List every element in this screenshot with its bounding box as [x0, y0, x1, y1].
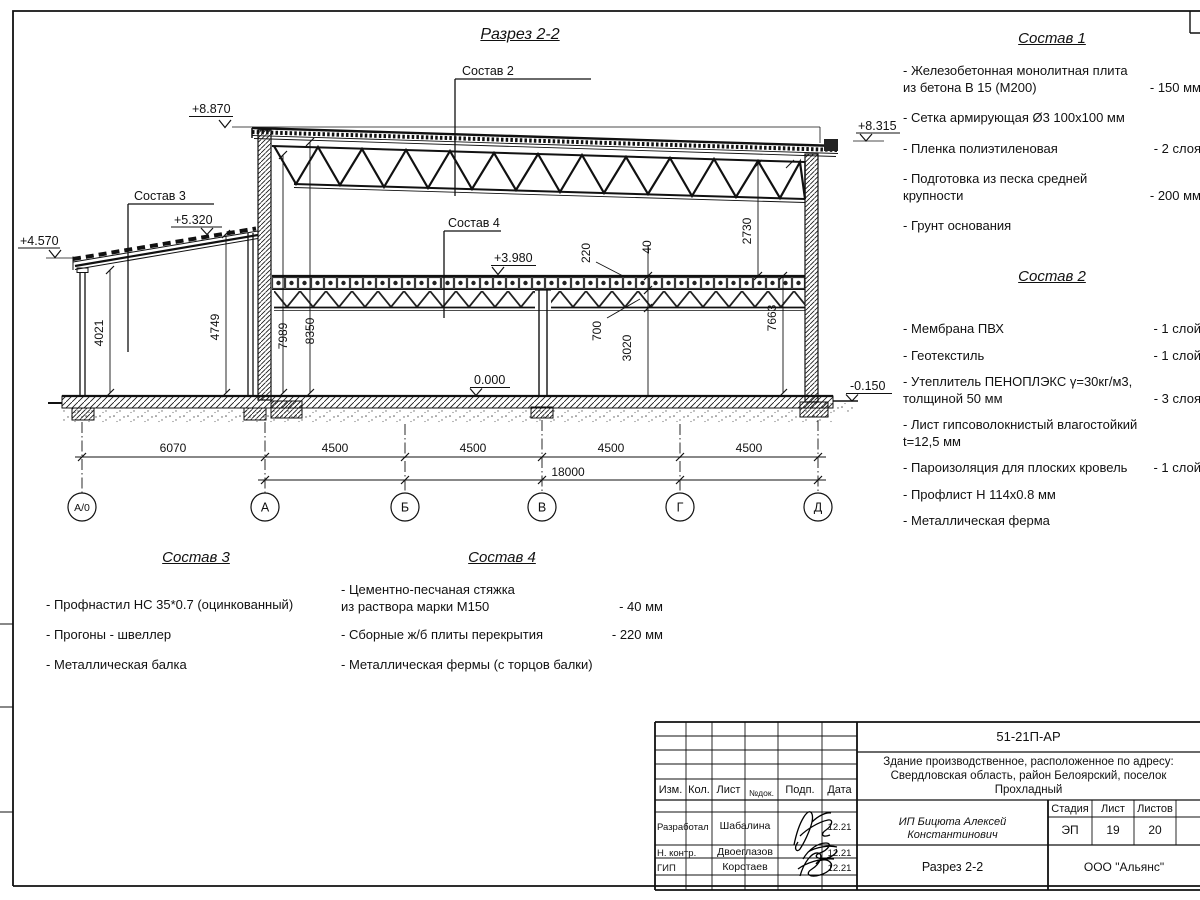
dim-6070: 6070 — [160, 441, 187, 455]
list-item: - Сетка армирующая Ø3 100х100 мм — [903, 110, 1200, 127]
elevation-marks — [18, 117, 900, 402]
dim-220: 220 — [579, 243, 593, 263]
col-ndok: №док. — [745, 787, 778, 800]
sostav3-list: Состав 3 - Профнастил НС 35*0.7 (оцинков… — [46, 549, 346, 674]
axis-label-a0: А/0 — [74, 502, 90, 514]
col-data: Дата — [822, 784, 857, 797]
list-item: - Сборные ж/б плиты перекрытия- 220 мм — [341, 627, 663, 644]
dim-7663: 7663 — [765, 304, 779, 331]
main-roof — [232, 127, 838, 157]
building-section — [48, 127, 858, 423]
row-date-gip: 12.21 — [822, 862, 857, 875]
wall-axis-a — [258, 130, 271, 400]
wall-axis-d — [805, 154, 818, 402]
list-item: - Прогоны - швеллер — [46, 627, 346, 644]
elev-3980: +3.980 — [494, 251, 533, 265]
row-date-nkontr: 12.21 — [822, 847, 857, 860]
dim-18000: 18000 — [551, 465, 585, 479]
leader-sostav3: Состав 3 — [134, 189, 186, 203]
dim-3020: 3020 — [620, 334, 634, 361]
axis-label-b: Б — [401, 501, 409, 515]
dim-7989: 7989 — [276, 322, 290, 349]
sostav4-heading: Состав 4 — [341, 549, 663, 566]
floor-slab — [48, 396, 858, 423]
sheet-value: 19 — [1092, 824, 1134, 837]
col-izm: Изм. — [655, 784, 686, 797]
list-item: - Профлист Н 114х0.8 мм — [903, 487, 1200, 504]
lean-to-annex — [73, 229, 258, 396]
sheets-value: 20 — [1134, 824, 1176, 837]
list-item: - Железобетонная монолитная плита из бет… — [903, 63, 1200, 96]
vertical-dimensions — [106, 138, 787, 397]
drawing-title: Разрез 2-2 — [430, 26, 610, 44]
dim-2730: 2730 — [740, 217, 754, 244]
sostav4-list: Состав 4 - Цементно-песчаная стяжка из р… — [341, 549, 663, 673]
roof-truss — [272, 146, 805, 203]
leader-sostav2: Состав 2 — [462, 64, 514, 78]
leader-sostav4: Состав 4 — [448, 216, 500, 230]
elev-8315: +8.315 — [858, 119, 897, 133]
row-role-nkontr: Н. контр. — [657, 847, 711, 860]
elev-5320: +5.320 — [174, 213, 213, 227]
stage-label: Стадия — [1048, 803, 1092, 816]
titleblock-sheet-title: Разрез 2-2 — [857, 861, 1048, 874]
sheets-label: Листов — [1134, 803, 1176, 816]
elev-8870: +8.870 — [192, 102, 231, 116]
list-item: - Металлическая балка — [46, 657, 346, 674]
drawing-sheet: { "sheet": { "title": "Разрез 2-2" }, "d… — [0, 0, 1200, 900]
axis-labels: А/0 А Б В Г Д — [74, 501, 823, 515]
dim-4500-3: 4500 — [598, 441, 625, 455]
row-role-razrabotal: Разработал — [657, 821, 711, 834]
sostav1-list: Состав 1 - Железобетонная монолитная пли… — [903, 30, 1200, 235]
elev-m0150: -0.150 — [850, 379, 885, 393]
customer-name: ИП Бицюта Алексей Константинович — [857, 816, 1048, 842]
col-podp: Подп. — [778, 784, 822, 797]
stage-value: ЭП — [1048, 824, 1092, 837]
row-name-gip: Коротаев — [712, 861, 778, 874]
axis-label-d: Д — [814, 501, 823, 515]
list-item: - Подготовка из песка средней крупности-… — [903, 171, 1200, 204]
project-desc-line1: Здание производственное, расположенное п… — [857, 756, 1200, 769]
sheet-label: Лист — [1092, 803, 1134, 816]
list-item: - Мембрана ПВХ- 1 слой — [903, 321, 1200, 338]
horizontal-dimension-labels: 6070 4500 4500 4500 4500 18000 — [160, 441, 763, 479]
row-date-razrabotal: 12.21 — [822, 821, 857, 834]
dim-4500-2: 4500 — [460, 441, 487, 455]
list-item: - Металлическая ферма — [903, 513, 1200, 530]
dim-4749: 4749 — [208, 313, 222, 340]
dim-4500-4: 4500 — [736, 441, 763, 455]
dim-40: 40 — [640, 240, 654, 254]
sostav2-heading: Состав 2 — [903, 268, 1200, 285]
row-name-razrabotal: Шабалина — [712, 820, 778, 833]
dim-8350: 8350 — [303, 317, 317, 344]
list-item: - Цементно-песчаная стяжка из раствора м… — [341, 582, 663, 615]
list-item: - Лист гипсоволокнистый влагостойкий t=1… — [903, 417, 1200, 450]
sostav3-heading: Состав 3 — [46, 549, 346, 566]
list-item: - Утеплитель ПЕНОПЛЭКС γ=30кг/м3, толщин… — [903, 374, 1200, 407]
list-item: - Пленка полиэтиленовая- 2 слоя — [903, 141, 1200, 158]
axis-label-a: А — [261, 501, 270, 515]
sostav1-heading: Состав 1 — [903, 30, 1200, 47]
project-desc-line3: Прохладный — [857, 784, 1200, 797]
list-item: - Геотекстиль- 1 слой — [903, 348, 1200, 365]
row-name-nkontr: Двоеглазов — [712, 846, 778, 859]
org-name: ООО "Альянс" — [1048, 861, 1200, 874]
doc-number: 51-21П-АР — [857, 730, 1200, 743]
col-list: Лист — [712, 784, 745, 797]
list-item: - Грунт основания — [903, 218, 1200, 235]
col-kol: Кол. — [686, 784, 712, 797]
axis-label-g: Г — [677, 501, 684, 515]
axis-grid — [68, 420, 832, 521]
elev-4570: +4.570 — [20, 234, 59, 248]
project-desc-line2: Свердловская область, район Белоярский, … — [857, 770, 1200, 783]
list-item: - Металлическая фермы (с торцов балки) — [341, 657, 663, 674]
axis-label-v: В — [538, 501, 546, 515]
list-item: - Профнастил НС 35*0.7 (оцинкованный) — [46, 597, 346, 614]
list-item: - Пароизоляция для плоских кровель- 1 сл… — [903, 460, 1200, 477]
dim-700: 700 — [590, 321, 604, 341]
dim-4021: 4021 — [92, 319, 106, 346]
row-role-gip: ГИП — [657, 862, 711, 875]
dim-4500-1: 4500 — [322, 441, 349, 455]
elev-0000: 0.000 — [474, 373, 505, 387]
sostav2-list: Состав 2 - Мембрана ПВХ- 1 слой - Геотек… — [903, 268, 1200, 530]
